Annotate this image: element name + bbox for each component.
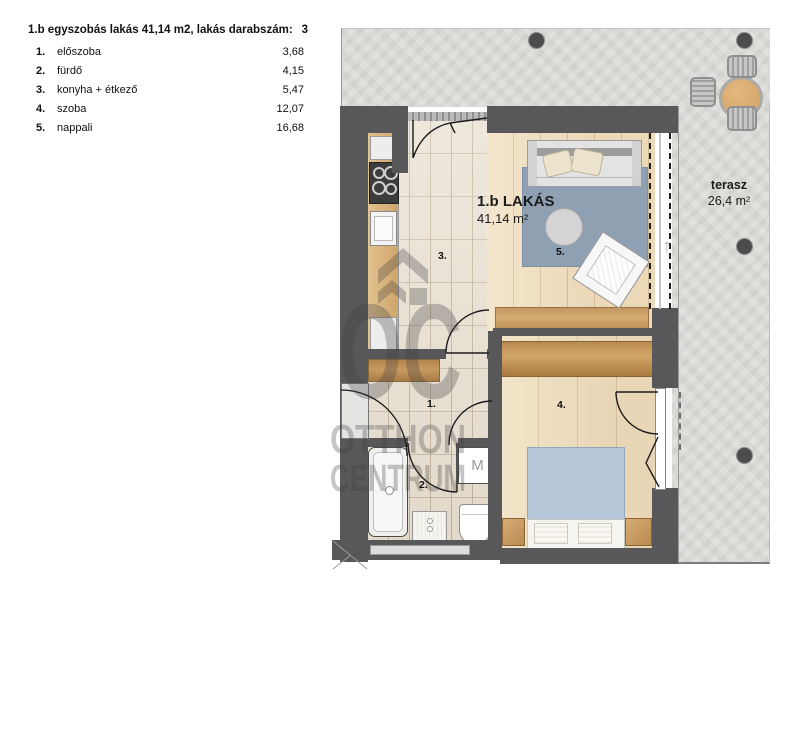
room-number-kitchen: 3.: [438, 250, 447, 262]
terrace-chair: [690, 77, 716, 107]
sofa-armrest: [528, 141, 537, 186]
plan-title: 1.b egyszobás lakás 41,14 m2, lakás dara…: [28, 24, 328, 36]
room-number: 5.: [36, 122, 57, 134]
bedroom-window: [655, 388, 666, 490]
room-number-bath: 2.: [419, 479, 428, 491]
room-number: 4.: [36, 103, 57, 115]
room-number-hall: 1.: [427, 398, 436, 410]
wall-exterior: [652, 308, 678, 388]
room-list-row: 3. konyha + étkező 5,47: [36, 84, 304, 103]
room-list-row: 2. fürdő 4,15: [36, 65, 304, 84]
room-number: 2.: [36, 65, 57, 77]
room-list: 1. előszoba 3,68 2. fürdő 4,15 3. konyha…: [36, 46, 304, 141]
bedroom-wardrobe: [500, 341, 654, 377]
floor-plan-page: 1.b egyszobás lakás 41,14 m2, lakás dara…: [0, 0, 793, 745]
kitchen-sink: [370, 211, 397, 246]
burner-icon: [385, 183, 397, 195]
wall-kitchen-hall: [368, 349, 446, 359]
drain-icon: [427, 526, 433, 532]
room-name: előszoba: [57, 46, 283, 58]
terrace-chair: [727, 55, 757, 78]
room-area: 3,68: [283, 46, 304, 58]
terrace-column: [528, 32, 545, 49]
slide-direction-arrow: ↑: [662, 236, 672, 258]
coffee-table: [545, 208, 583, 246]
terrace-label: terasz: [700, 178, 758, 192]
room-number: 3.: [36, 84, 57, 96]
room-list-row: 1. előszoba 3,68: [36, 46, 304, 65]
entrance-threshold: [408, 112, 487, 121]
bathroom-window: [370, 545, 470, 555]
room-list-row: 4. szoba 12,07: [36, 103, 304, 122]
sofa: [527, 140, 642, 187]
bed-pillow: [534, 523, 568, 544]
sink-basin: [374, 216, 393, 241]
plan-title-text: 1.b egyszobás lakás 41,14 m2, lakás dara…: [28, 24, 293, 36]
room-area: 4,15: [283, 65, 304, 77]
hall-closet-niche: [341, 383, 369, 439]
room-name: fürdő: [57, 65, 283, 77]
apartment-area: 41,14 m²: [477, 211, 528, 226]
faucet-icon: [427, 518, 433, 524]
wall-bathroom: [368, 438, 408, 447]
terrace-column: [736, 447, 753, 464]
bathtub: [368, 447, 408, 537]
terrace-area: 26,4 m²: [696, 194, 762, 208]
plan-unit-count: 3: [302, 24, 308, 36]
room-number: 1.: [36, 46, 57, 58]
sliding-glass-wall-dash: [669, 133, 671, 309]
bathtub-drain: [385, 486, 394, 495]
room-name: nappali: [57, 122, 276, 134]
nightstand: [625, 518, 652, 546]
wall-exterior: [500, 548, 678, 564]
sliding-glass-pane: [659, 133, 661, 309]
sofa-pillow: [570, 147, 604, 176]
room-number-living: 5.: [556, 246, 565, 258]
room-number-bedroom: 4.: [557, 399, 566, 411]
wall-pillar: [392, 133, 408, 173]
window-sill-dashes: [679, 392, 683, 450]
terrace-edge-line: [678, 106, 679, 562]
bathroom-sink: [412, 511, 447, 542]
room-list-row: 5. nappali 16,68: [36, 122, 304, 141]
terrace-column: [736, 238, 753, 255]
washing-machine-label: M: [471, 457, 484, 474]
room-area: 5,47: [283, 84, 304, 96]
room-area: 12,07: [276, 103, 304, 115]
room-area: 16,68: [276, 122, 304, 134]
bed-foot: [527, 519, 625, 549]
wall: [340, 106, 368, 562]
wall-bathroom: [458, 438, 502, 447]
nightstand: [502, 518, 525, 546]
sofa-armrest: [632, 141, 641, 186]
wall-living-bedroom: [493, 328, 655, 336]
apartment-label: 1.b LAKÁS: [477, 193, 555, 210]
room-name: konyha + étkező: [57, 84, 283, 96]
bed-pillow: [578, 523, 612, 544]
hall-cabinet: [368, 359, 440, 382]
toilet-tank: [462, 507, 488, 515]
armchair-cushion: [586, 245, 636, 295]
sliding-glass-wall-dash: [649, 133, 651, 309]
sofa-pillow: [542, 149, 575, 178]
burner-icon: [372, 181, 386, 195]
terrace-column: [736, 32, 753, 49]
room-name: szoba: [57, 103, 276, 115]
terrace-paving-right: [672, 106, 770, 564]
toilet: [459, 504, 491, 544]
terrace-chair: [727, 106, 757, 131]
bed-cover: [527, 447, 625, 523]
wall: [487, 106, 678, 133]
